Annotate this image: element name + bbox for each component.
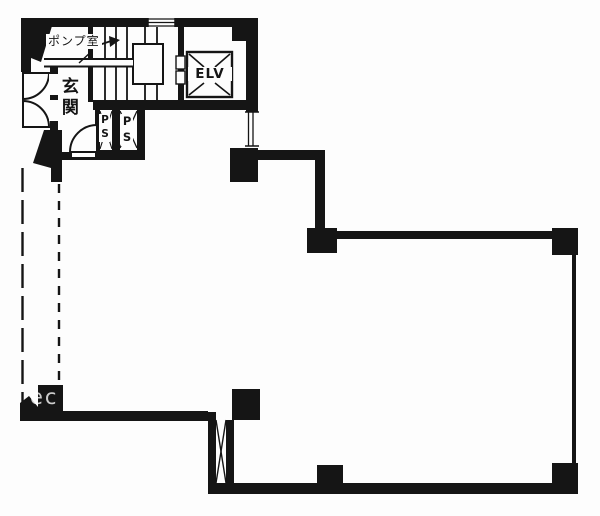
boundary-lines xyxy=(23,168,60,411)
duct-shaft xyxy=(208,412,234,483)
column xyxy=(230,148,258,182)
pump-room-label: ポンプ室 xyxy=(46,34,102,49)
column xyxy=(232,389,260,420)
walls xyxy=(20,18,578,494)
column xyxy=(552,228,578,255)
elevator-door-mark xyxy=(176,71,185,84)
ps-label-right: PS xyxy=(121,114,133,146)
door-arc xyxy=(70,125,97,152)
elevator-door-mark xyxy=(176,56,185,69)
door-arc xyxy=(23,73,49,99)
ps-label-left: PS xyxy=(99,114,110,142)
entrance-label: 玄関 xyxy=(58,77,76,119)
entrance-door-arcs xyxy=(23,73,49,127)
column xyxy=(317,465,343,484)
watermark: ec xyxy=(30,386,58,408)
door-arc xyxy=(23,101,49,127)
window-top xyxy=(148,18,175,27)
floor-plan-svg xyxy=(0,0,600,516)
elevator-label: ELV xyxy=(188,67,232,81)
elevator-shaft xyxy=(176,27,232,100)
window-core-east xyxy=(245,112,259,146)
column xyxy=(307,228,337,253)
floor-plan-canvas: ポンプ室 玄関 ELV PS PS ec xyxy=(0,0,600,516)
